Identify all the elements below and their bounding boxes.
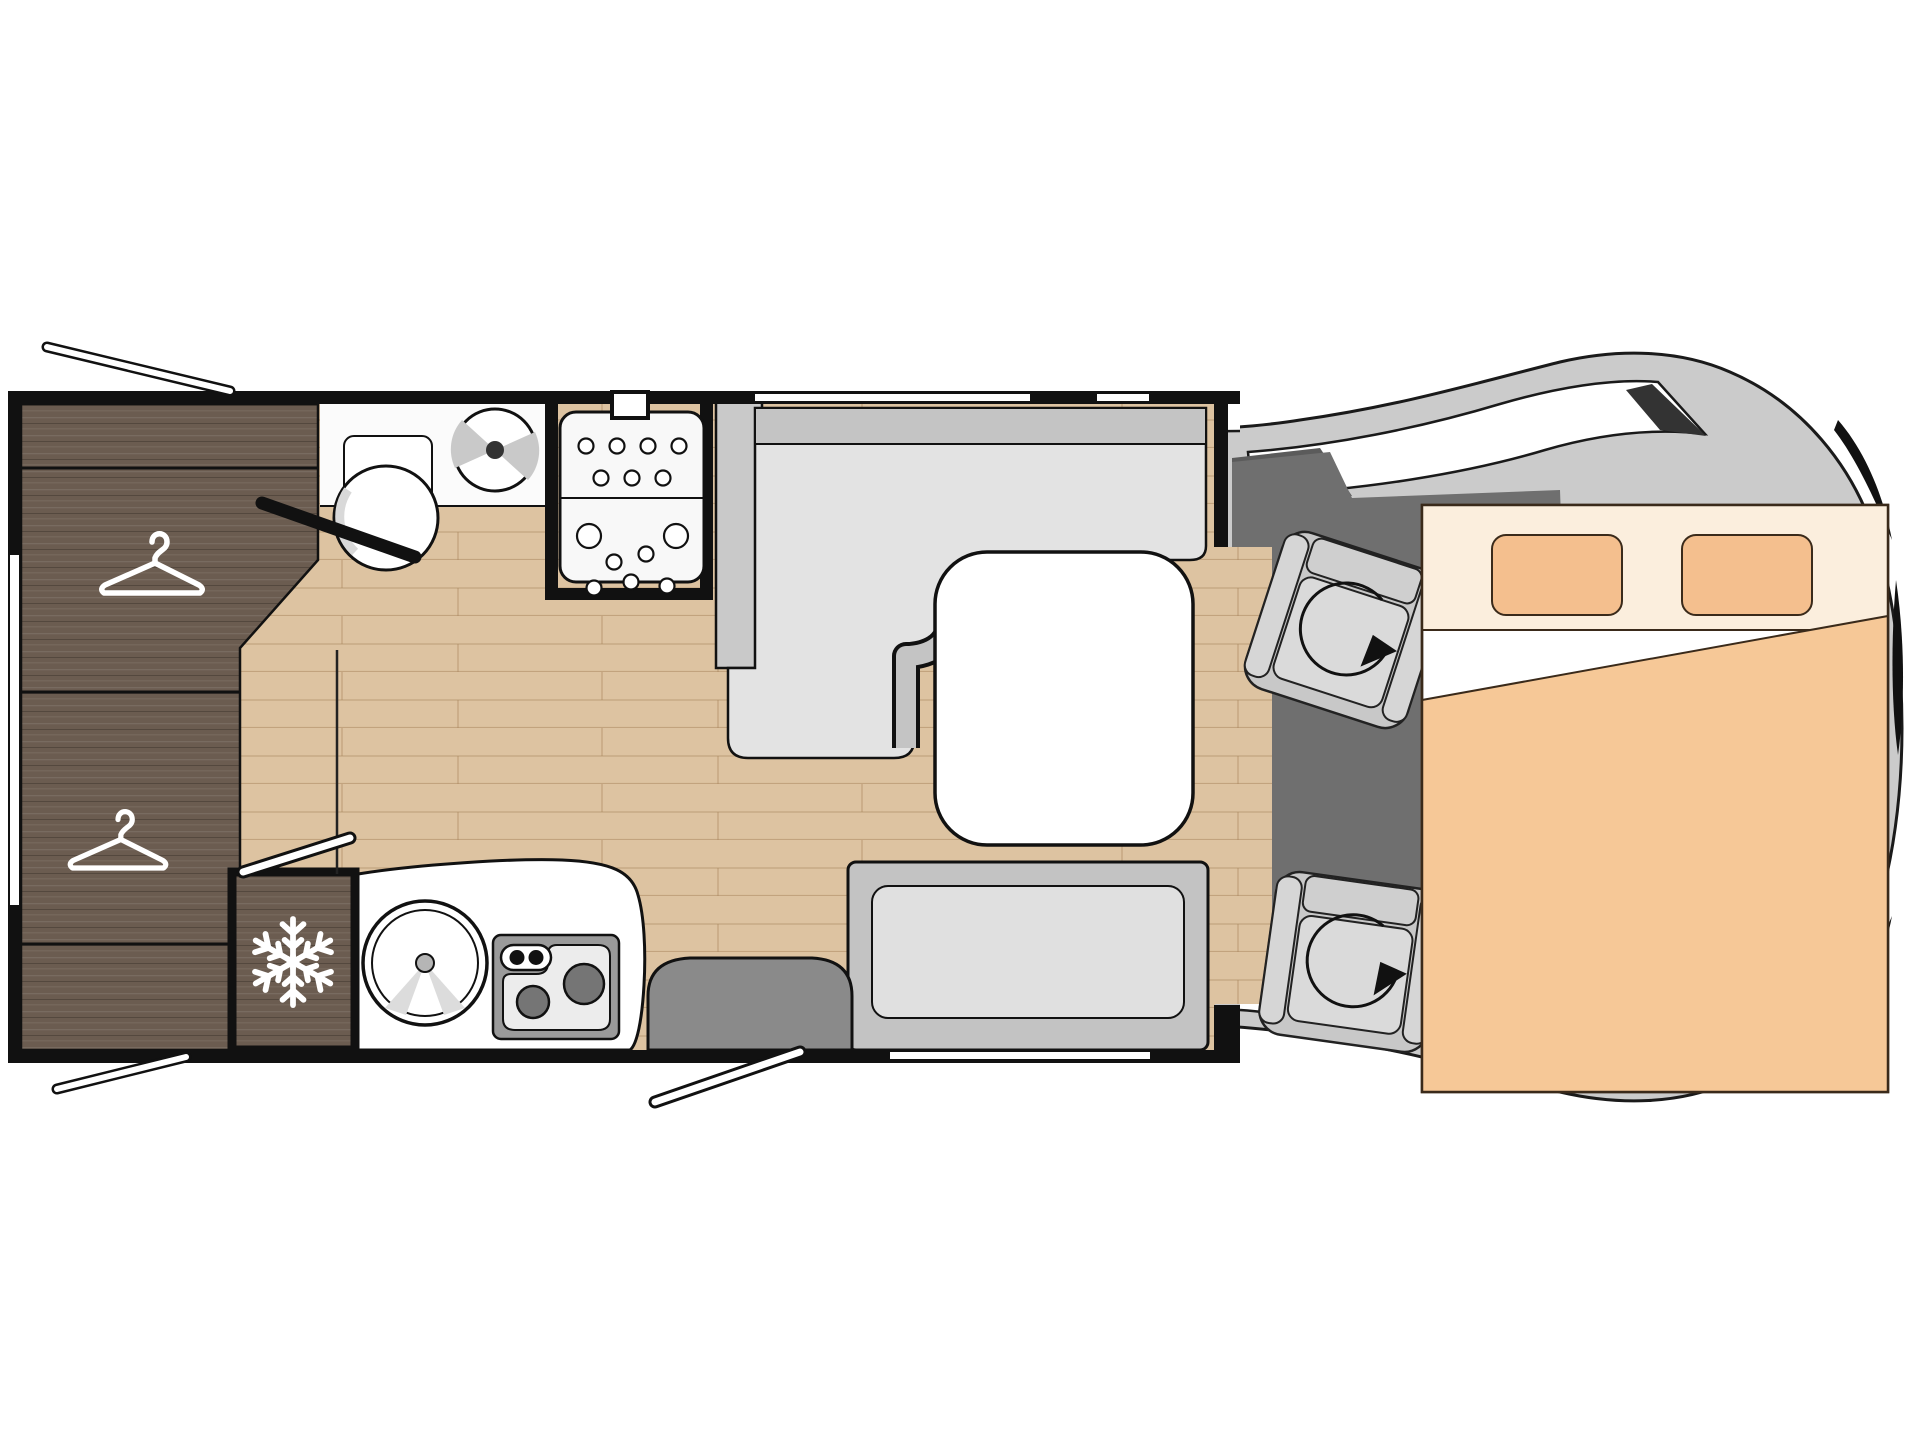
shower-cabin bbox=[545, 404, 713, 600]
kitchen-sink bbox=[363, 901, 487, 1025]
floorplan-svg bbox=[0, 0, 1920, 1440]
dinette-table bbox=[935, 552, 1193, 845]
floorplan-canvas bbox=[0, 0, 1920, 1440]
rear-window bbox=[10, 555, 19, 905]
toilet bbox=[334, 466, 438, 570]
wall-front-upper bbox=[1214, 391, 1228, 547]
window-front-top bbox=[1097, 394, 1149, 401]
bed-blanket bbox=[1422, 616, 1888, 1092]
entry-step bbox=[648, 958, 852, 1050]
cab-seat-passenger bbox=[1256, 869, 1447, 1055]
vent-fan-icon bbox=[451, 409, 539, 491]
stove bbox=[493, 935, 619, 1039]
pillow-right bbox=[1682, 535, 1812, 615]
pillow-left bbox=[1492, 535, 1622, 615]
window-opening-top-rear bbox=[47, 347, 230, 391]
burner-small bbox=[517, 986, 549, 1018]
kitchen bbox=[358, 860, 645, 1050]
window-side-bench bbox=[890, 1052, 1150, 1059]
shower-head-mount bbox=[612, 392, 648, 418]
fridge bbox=[232, 872, 355, 1050]
window-dinette bbox=[755, 394, 1030, 401]
wall-front-lower-stub bbox=[1214, 1005, 1240, 1063]
drop-down-bed bbox=[1422, 505, 1888, 1092]
side-bench bbox=[848, 862, 1208, 1050]
burner-large bbox=[564, 964, 604, 1004]
bench-backrest-top bbox=[755, 408, 1206, 444]
